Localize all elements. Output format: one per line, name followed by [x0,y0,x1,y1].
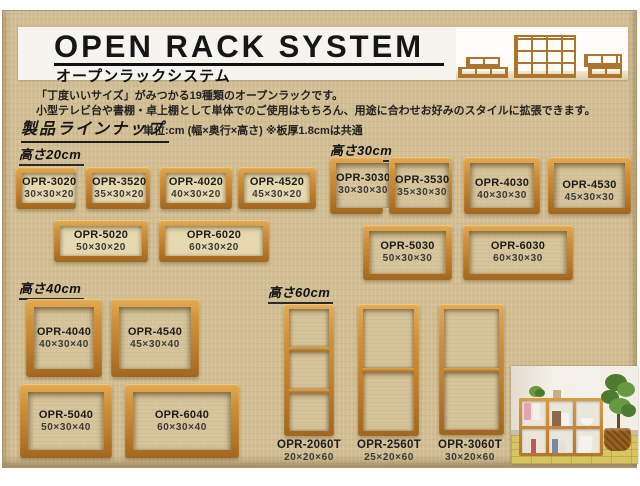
product-model: OPR-2560T [349,439,429,452]
product-card-opr-6040: OPR-6040 60×30×40 [125,384,239,458]
product-card-opr-3530: OPR-3530 35×30×30 [389,157,452,214]
bowl-icon [581,418,593,425]
product-card-opr-3020: OPR-3020 30×30×20 [16,167,76,209]
product-size: 30×20×60 [431,452,509,464]
product-size: 45×30×20 [252,189,302,201]
product-model: OPR-4040 [37,326,91,339]
rack-compartment [289,351,329,389]
product-model: OPR-4540 [128,326,182,339]
product-size: 35×30×20 [94,189,144,201]
vase-icon [566,388,572,398]
section-label-20cm: 高さ20cm [19,144,84,166]
photo-frame-icon [553,390,561,398]
product-card-opr-3030: OPR-3030 30×30×30 [330,157,383,214]
rack-compartment [444,372,499,431]
product-card-opr-6020: OPR-6020 60×30×20 [159,220,269,262]
product-card-opr-5030: OPR-5030 50×30×30 [363,225,452,280]
product-model: OPR-2060T [269,439,349,452]
rack-opening: OPR-4530 45×30×30 [554,163,625,208]
product-card-opr-4540: OPR-4540 45×30×40 [111,299,199,377]
rack-opening: OPR-4030 40×30×30 [470,163,534,208]
product-model: OPR-3030 [336,172,390,185]
rack-opening: OPR-3520 35×30×20 [92,173,146,203]
product-model: OPR-6040 [155,409,209,422]
rack-compartment [289,393,329,431]
product-card-opr-3060t [439,304,504,435]
rack-compartment [363,372,414,431]
rack-compartment [363,309,414,368]
rack-opening: OPR-3030 30×30×30 [336,163,390,208]
section-label-60cm: 高さ60cm [268,282,333,304]
rack-cell [522,429,546,454]
product-label-opr-3060t: OPR-3060T 30×20×60 [431,439,509,464]
product-card-opr-3520: OPR-3520 35×30×20 [86,167,150,209]
page-subtitle: オープンラックシステム [56,65,231,86]
product-size: 20×20×60 [269,452,349,464]
rack-stack-right [588,67,622,78]
product-label-opr-2560t: OPR-2560T 25×20×60 [349,439,429,464]
book-icon [524,437,530,453]
product-model: OPR-5030 [380,240,434,253]
shirt-icon [533,403,540,420]
basket-pot-icon [604,428,631,451]
product-size: 45×30×30 [565,192,615,204]
board-icon [578,435,593,453]
rack-stack-left [458,67,508,78]
product-size: 60×30×30 [493,253,543,265]
product-size: 30×30×30 [338,185,388,197]
product-size: 60×30×40 [157,422,207,434]
product-card-opr-4530: OPR-4530 45×30×30 [548,157,631,214]
product-model: OPR-6020 [187,229,241,242]
product-model: OPR-5020 [74,229,128,242]
product-model: OPR-5040 [39,409,93,422]
intro-line-1: 「丁度いいサイズ」がみつかる19種類のオープンラックです。 [36,89,596,104]
product-card-opr-5020: OPR-5020 50×30×20 [54,220,148,262]
book-icon [562,413,569,426]
product-model: OPR-3530 [395,174,449,187]
rack-cell [549,429,573,454]
product-card-opr-6030: OPR-6030 60×30×30 [463,225,573,280]
book-icon [531,439,536,453]
styled-rack [519,398,603,456]
rack-opening: OPR-4540 45×30×40 [119,307,191,369]
section-label-40cm: 高さ40cm [19,278,84,300]
product-model: OPR-4530 [562,179,616,192]
rack-opening: OPR-3530 35×30×30 [395,163,449,208]
product-size: 50×30×40 [41,422,91,434]
rack-opening: OPR-5040 50×30×40 [28,392,104,450]
rack-cell [522,401,546,426]
product-model: OPR-6030 [491,240,545,253]
book-icon [552,411,561,426]
rack-compartment [289,309,329,347]
header-panel: OPEN RACK SYSTEM オープンラックシステム [18,27,628,80]
rack-opening: OPR-4520 45×30×20 [244,173,310,203]
product-size: 50×30×20 [76,242,126,254]
product-model: OPR-3520 [92,176,146,189]
rack-opening: OPR-4040 40×30×40 [34,307,94,369]
rack-cell [576,429,600,454]
product-card-opr-4020: OPR-4020 40×30×20 [160,167,232,209]
product-label-opr-2060t: OPR-2060T 20×20×60 [269,439,349,464]
product-model: OPR-3060T [431,439,509,452]
product-card-opr-2560t [358,304,419,436]
rack-opening: OPR-6020 60×30×20 [165,226,263,256]
rack-cell [549,401,573,426]
product-card-opr-4030: OPR-4030 40×30×30 [464,157,540,214]
unit-note: 単位:cm (幅×奥行×高さ) ※板厚1.8cmは共通 [143,122,363,138]
rack-opening: OPR-5030 50×30×30 [369,231,446,274]
product-size: 40×30×40 [39,339,89,351]
product-card-opr-4520: OPR-4520 45×30×20 [238,167,316,209]
product-model: OPR-4520 [250,176,304,189]
product-size: 50×30×30 [383,253,433,265]
rack-compartment [444,309,499,368]
product-model: OPR-3020 [22,176,76,189]
product-size: 35×30×30 [397,187,447,199]
header-rack-photo [456,27,628,80]
book-icon [537,438,542,453]
product-size: 40×30×20 [171,189,221,201]
plant-foliage-icon [621,404,636,417]
rack-opening: OPR-4020 40×30×20 [166,173,226,203]
catalog-page: { "header": { "title": "OPEN RACK SYSTEM… [0,0,640,486]
product-size: 25×20×60 [349,452,429,464]
book-icon [559,441,565,453]
product-model: OPR-4030 [475,177,529,190]
product-size: 45×30×40 [130,339,180,351]
rack-stack-center [514,35,576,78]
product-card-opr-2060t [284,304,334,436]
rack-stack-right-top [584,54,622,67]
rack-opening: OPR-6030 60×30×30 [469,231,567,274]
rack-opening: OPR-3020 30×30×20 [22,173,76,203]
page-title: OPEN RACK SYSTEM [54,29,424,66]
plant-foliage-icon [617,382,635,397]
rack-opening: OPR-5020 50×30×20 [60,226,142,256]
book-icon [552,439,558,453]
product-model: OPR-4020 [169,176,223,189]
small-plant-icon [535,389,545,397]
product-card-opr-5040: OPR-5040 50×30×40 [20,384,112,458]
shirt-icon [524,403,531,420]
product-size: 60×30×20 [189,242,239,254]
rack-stack-left-top [466,57,500,68]
product-card-opr-4040: OPR-4040 40×30×40 [26,299,102,377]
catalog-canvas: OPEN RACK SYSTEM オープンラックシステム 「丁度いいサイズ」がみ… [2,10,637,468]
product-size: 30×30×20 [24,189,74,201]
product-size: 40×30×30 [477,190,527,202]
room-photo [511,366,638,464]
rack-opening: OPR-6040 60×30×40 [133,392,231,450]
rack-cell [576,401,600,426]
